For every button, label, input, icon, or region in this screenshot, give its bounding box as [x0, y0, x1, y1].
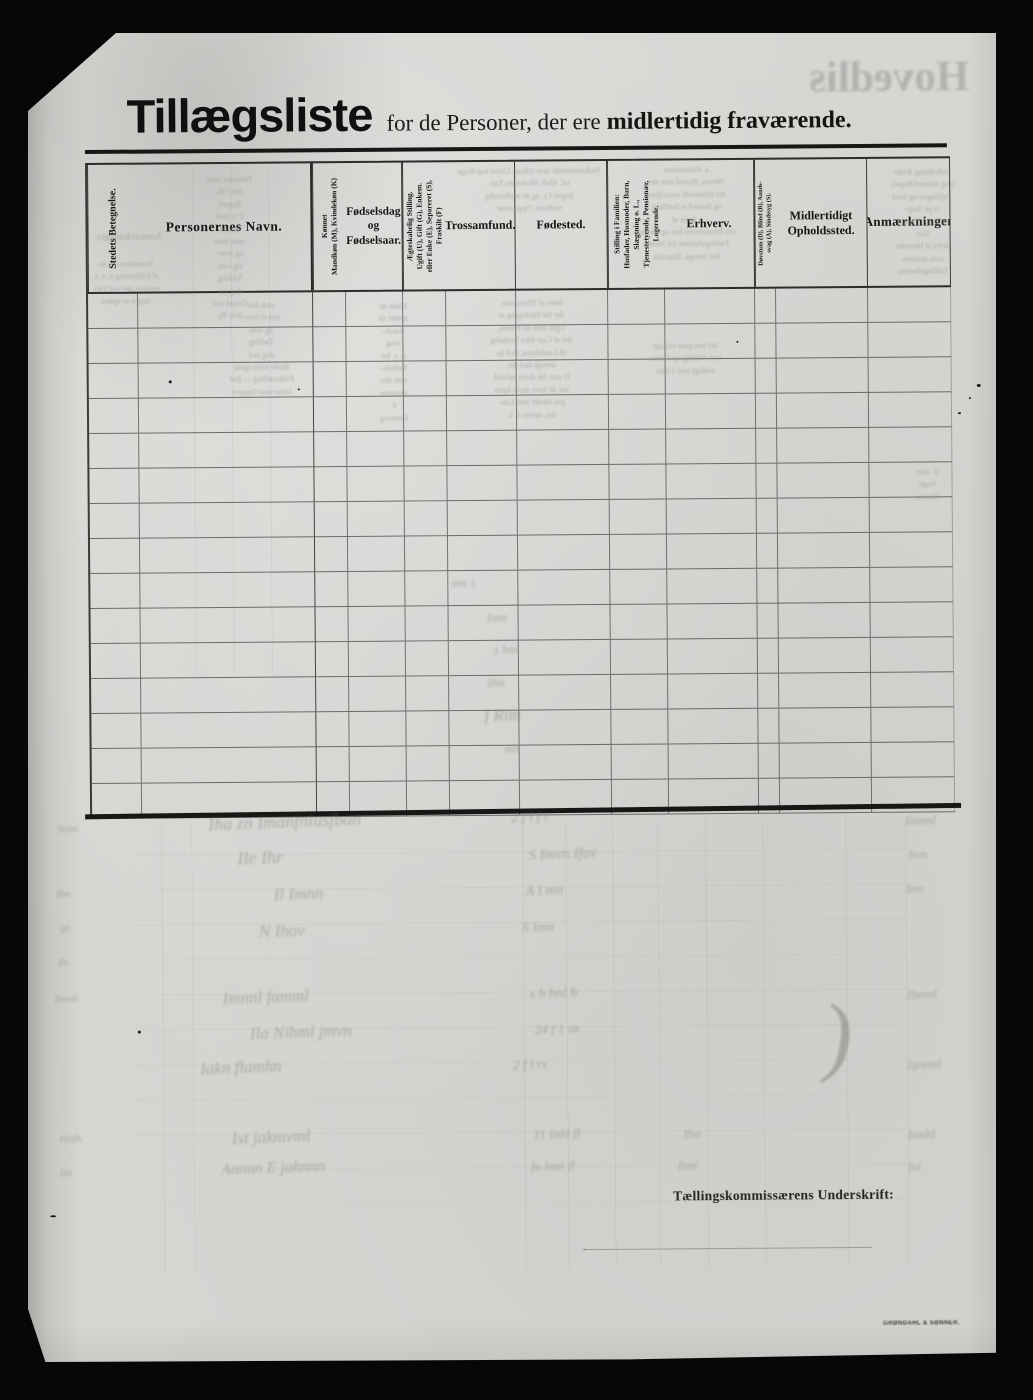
- table-cell-dovstum: [757, 499, 778, 534]
- bleedthrough-handwriting: gn: [60, 923, 70, 934]
- table-cell-fodested: [518, 570, 610, 606]
- table-cell-midlertidigt-opholdssted: [777, 393, 869, 429]
- table-cell-stedets-betegnelse: [89, 364, 139, 399]
- table-cell-fodselsdag: [349, 677, 406, 712]
- table-cell-stedets-betegnelse: [90, 539, 140, 574]
- table-cell-trossamfund: [448, 501, 518, 537]
- table-cell-kjonnet: [316, 677, 349, 712]
- col-header-aegteskabelig-stilling: Ægteskabelig Stilling. Ugift (U), Gift (…: [402, 162, 446, 289]
- table-cell-anmaerkninger: [869, 392, 952, 428]
- table-cell-fodselsdag: [349, 642, 406, 677]
- ink-speck: [736, 341, 738, 343]
- scanned-paper-sheet: Hovedliste Tillægslistefor de Personer, …: [28, 33, 996, 1362]
- table-cell-aegteskabelig-stilling: [406, 711, 449, 746]
- bleedthrough-print-block: Indledning, Kirke a og dermed Bopæl, Tæl…: [866, 166, 979, 278]
- table-cell-dovstum: [755, 289, 776, 324]
- table-cell-aegteskabelig-stilling: [407, 746, 450, 781]
- table-cell-personernes-navn: [141, 677, 316, 713]
- table-cell-stedets-betegnelse: [90, 574, 140, 609]
- table-cell-erhverv: [666, 429, 756, 465]
- ink-speck: [958, 412, 961, 414]
- table-cell-trossamfund: [447, 466, 517, 502]
- table-cell-anmaerkninger: [869, 357, 952, 393]
- scanned-census-form-page: { "document": { "title": "Tillægsliste",…: [0, 0, 1033, 1400]
- bleedthrough-handwriting: Inl: [908, 1159, 922, 1174]
- bleedthrough-print-block: d. Ann Sogn Skema: [882, 466, 972, 504]
- bleedthrough-handwriting: Iakn flamhn: [200, 1056, 282, 1079]
- col-header-kjonnet: Kønnet Mandkøn (M), Kvindekøn (K): [312, 163, 346, 290]
- table-cell-kjonnet: [316, 712, 349, 747]
- table-cell-fodested: [519, 675, 611, 711]
- bleedthrough-handwriting: Ist jakmvml: [231, 1126, 311, 1149]
- ink-speck: [298, 388, 300, 390]
- bleedthrough-grid-line: [135, 1094, 907, 1101]
- table-cell-dovstum: [757, 569, 778, 604]
- table-cell-anmaerkninger: [869, 427, 952, 463]
- table-cell-midlertidigt-opholdssted: [779, 638, 871, 674]
- bleedthrough-handwriting: 2 f l rx: [513, 1056, 548, 1073]
- table-cell-anmaerkninger: [871, 707, 954, 743]
- bleedthrough-handwriting: S Imvn Ifov: [528, 845, 597, 864]
- table-cell-stilling-i-familien: [609, 394, 666, 429]
- table-cell-fodselsdag: [348, 607, 405, 642]
- table-cell-fodested: [518, 605, 610, 641]
- table-cell-anmaerkninger: [871, 637, 954, 673]
- table-cell-fodselsdag: [350, 747, 407, 782]
- table-cell-fodselsdag: [348, 502, 405, 537]
- bleedthrough-print-block: Børn af Tilreisende, der for Skolegang e…: [447, 297, 616, 422]
- table-cell-stilling-i-familien: [610, 569, 667, 604]
- table-cell-stilling-i-familien: [610, 604, 667, 639]
- bleedthrough-print-block: Blade de opføre de Aands- svag d. v. for…: [347, 300, 440, 425]
- table-cell-anmaerkninger: [868, 322, 951, 358]
- table-cell-personernes-navn: [140, 502, 315, 538]
- table-cell-aegteskabelig-stilling: [406, 641, 449, 676]
- table-cell-erhverv: [668, 674, 758, 710]
- table-cell-personernes-navn: [140, 537, 315, 573]
- table-cell-kjonnet: [314, 397, 347, 432]
- table-cell-midlertidigt-opholdssted: [778, 603, 870, 639]
- table-cell-stedets-betegnelse: [90, 504, 140, 539]
- table-cell-personernes-navn: [139, 467, 314, 503]
- table-cell-dovstum: [756, 464, 777, 499]
- table-cell-trossamfund: [448, 606, 518, 642]
- signature-line: [584, 1247, 872, 1250]
- table-cell-stedets-betegnelse: [92, 749, 142, 784]
- bleedthrough-handwriting: Iln: [60, 1167, 73, 1179]
- table-cell-stilling-i-familien: [608, 289, 665, 324]
- table-cell-erhverv: [668, 639, 758, 675]
- table-cell-kjonnet: [315, 502, 348, 537]
- table-cell-anmaerkninger: [871, 672, 954, 708]
- col-header-fodselsdag: Fødselsdag og Fødselsaar.: [345, 163, 403, 290]
- bleedthrough-handwriting: mn s: [451, 575, 476, 592]
- bleedthrough-handwriting: mn: [504, 741, 519, 757]
- table-cell-erhverv: [667, 534, 757, 570]
- table-cell-erhverv: [669, 744, 759, 780]
- ink-speck: [169, 380, 172, 383]
- table-cell-dovstum: [758, 674, 779, 709]
- table-cell-fodested: [519, 640, 611, 676]
- bleedthrough-grid-line: [134, 884, 906, 891]
- table-cell-stedets-betegnelse: [89, 434, 139, 469]
- bleedthrough-handwriting: Innhl: [907, 1126, 935, 1143]
- bleedthrough-handwriting: Ihn: [56, 888, 71, 901]
- bleedthrough-handwriting: s hm: [494, 641, 519, 658]
- form-content: Hovedliste Tillægslistefor de Personer, …: [27, 26, 1005, 1363]
- table-cell-stilling-i-familien: [610, 534, 667, 569]
- table-cell-dovstum: [757, 534, 778, 569]
- table-cell-kjonnet: [315, 607, 348, 642]
- table-cell-aegteskabelig-stilling: [405, 606, 448, 641]
- table-cell-personernes-navn: [140, 572, 315, 608]
- bleedthrough-handwriting: Ihn: [683, 1126, 701, 1143]
- table-cell-stilling-i-familien: [611, 639, 668, 674]
- table-cell-personernes-navn: [142, 747, 317, 783]
- ink-speck: [977, 384, 981, 387]
- form-title-subtitle-bold: midlertidig fraværende.: [607, 107, 852, 135]
- bleedthrough-handwriting: Ile Ihr: [237, 847, 283, 870]
- bleedthrough-handwriting: Snn: [905, 881, 924, 897]
- bleedthrough-handwriting: 24 f 1 sn: [535, 1021, 580, 1039]
- table-cell-anmaerkninger: [870, 532, 953, 568]
- bleedthrough-print-block: a. Kolonnerne Skema, Bosted som der der …: [616, 164, 757, 264]
- bleedthrough-handwriting: Iha zn Imanfnlusfban: [208, 809, 362, 835]
- table-cell-dovstum: [759, 744, 780, 779]
- ink-speck: [50, 1215, 56, 1217]
- table-cell-anmaerkninger: [870, 567, 953, 603]
- table-cell-fodested: [518, 500, 610, 536]
- table-cell-stilling-i-familien: [609, 464, 666, 499]
- table-cell-stedets-betegnelse: [91, 714, 141, 749]
- bleedthrough-handwriting: Hnfh: [59, 1133, 81, 1146]
- table-cell-aegteskabelig-stilling: [405, 536, 448, 571]
- table-cell-midlertidigt-opholdssted: [777, 358, 869, 394]
- bleedthrough-print-block: Fornødent om de af Udflytning o. s. v. m…: [67, 258, 185, 308]
- table-cell-stedets-betegnelse: [88, 329, 138, 364]
- table-cell-kjonnet: [315, 537, 348, 572]
- table-cell-dovstum: [756, 429, 777, 464]
- bleedthrough-print-block: som den nys er bort- og som Tælling dog …: [197, 299, 326, 399]
- bleedthrough-handwriting: Il Imnn: [273, 883, 323, 905]
- bleedthrough-handwriting: 11 Inhl fl: [533, 1126, 580, 1144]
- bleedthrough-handwriting: 2 f l f r: [511, 810, 550, 827]
- bleedthrough-print-block: der betegnet vedlagt som Stilling og Ske…: [621, 340, 749, 378]
- table-cell-kjonnet: [316, 642, 349, 677]
- table-cell-kjonnet: [315, 572, 348, 607]
- table-cell-dovstum: [756, 394, 777, 429]
- table-cell-midlertidigt-opholdssted: [778, 498, 870, 534]
- title-rule: [85, 143, 947, 154]
- bleedthrough-layer: Personer, som den Tid, Bopæl, f. v. med …: [27, 26, 995, 34]
- table-cell-erhverv: [666, 394, 756, 430]
- bleedthrough-handwriting: Nnm: [57, 823, 78, 836]
- table-cell-dovstum: [757, 604, 778, 639]
- table-cell-midlertidigt-opholdssted: [777, 463, 869, 499]
- table-cell-stilling-i-familien: [611, 674, 668, 709]
- table-cell-midlertidigt-opholdssted: [778, 533, 870, 569]
- table-cell-erhverv: [665, 289, 755, 325]
- table-cell-midlertidigt-opholdssted: [779, 708, 871, 744]
- table-cell-midlertidigt-opholdssted: [776, 288, 868, 324]
- col-header-midlertidigt-opholdssted: Midlertidigt Opholdssted.: [775, 159, 868, 287]
- bleedthrough-handwriting: Ihnnl: [54, 993, 78, 1006]
- table-cell-stilling-i-familien: [609, 429, 666, 464]
- table-cell-erhverv: [667, 499, 757, 535]
- table-cell-midlertidigt-opholdssted: [776, 323, 868, 359]
- table-cell-anmaerkninger: [870, 602, 953, 638]
- table-cell-stedets-betegnelse: [91, 609, 141, 644]
- table-cell-dovstum: [758, 639, 779, 674]
- table-cell-fodested: [520, 745, 612, 781]
- table-cell-aegteskabelig-stilling: [404, 431, 447, 466]
- bleedthrough-handwriting: ): [821, 985, 854, 1087]
- bleedthrough-handwriting: Ihn: [487, 675, 505, 692]
- table-cell-trossamfund: [448, 536, 518, 572]
- bleedthrough-handwriting: Imnnl: [905, 812, 936, 829]
- table-cell-dovstum: [755, 324, 776, 359]
- table-cell-dovstum: [756, 359, 777, 394]
- table-cell-fodested: [517, 430, 609, 466]
- signature-label: Tællingskommissærens Underskrift:: [673, 1187, 894, 1205]
- table-cell-fodested: [519, 710, 611, 746]
- table-cell-fodselsdag: [348, 572, 405, 607]
- ink-speck: [138, 1031, 141, 1034]
- table-cell-aegteskabelig-stilling: [405, 571, 448, 606]
- table-cell-fodselsdag: [347, 467, 404, 502]
- table-cell-fodselsdag: [347, 432, 404, 467]
- bleedthrough-handwriting: Ibmnl: [906, 986, 937, 1003]
- table-cell-midlertidigt-opholdssted: [777, 428, 869, 464]
- bleedthrough-print-block: Vedkommende dem vilkaar Listen kan Regn …: [448, 165, 610, 216]
- table-cell-erhverv: [666, 464, 756, 500]
- form-title-main: Tillægsliste: [126, 88, 372, 143]
- form-title-subtitle: for de Personer, der ere: [386, 109, 600, 136]
- ink-speck: [969, 397, 971, 399]
- bleedthrough-handwriting: Ila Nihml jmvn: [250, 1021, 353, 1045]
- table-cell-kjonnet: [317, 747, 350, 782]
- bleedthrough-print-block: Anmærkninger.: [69, 228, 189, 246]
- table-cell-stilling-i-familien: [611, 709, 668, 744]
- bleedthrough-handwriting: Imnnl famml: [222, 986, 309, 1009]
- table-cell-kjonnet: [314, 467, 347, 502]
- bleedthrough-grid-line: [134, 919, 906, 926]
- table-cell-kjonnet: [314, 432, 347, 467]
- table-cell-erhverv: [668, 709, 758, 745]
- table-cell-personernes-navn: [139, 397, 314, 433]
- table-cell-anmaerkninger: [868, 287, 951, 323]
- col-header-dovstum: Døvstum (D), Blind (B), Aands- svag (A),…: [754, 160, 776, 287]
- table-cell-erhverv: [667, 569, 757, 605]
- printer-imprint: GRØNDAHL & SØNNER.: [883, 1320, 960, 1327]
- table-cell-stedets-betegnelse: [91, 679, 141, 714]
- table-cell-stilling-i-familien: [612, 744, 669, 779]
- form-title: Tillægslistefor de Personer, der eremidl…: [126, 82, 956, 144]
- table-cell-midlertidigt-opholdssted: [779, 673, 871, 709]
- table-cell-stedets-betegnelse: [89, 469, 139, 504]
- table-cell-stedets-betegnelse: [89, 399, 139, 434]
- table-cell-fodselsdag: [348, 537, 405, 572]
- bleedthrough-handwriting: Imn: [486, 609, 507, 626]
- table-cell-midlertidigt-opholdssted: [778, 568, 870, 604]
- table-cell-stedets-betegnelse: [91, 644, 141, 679]
- table-cell-dovstum: [758, 709, 779, 744]
- table-cell-stilling-i-familien: [610, 499, 667, 534]
- table-cell-personernes-navn: [139, 432, 314, 468]
- table-cell-personernes-navn: [141, 607, 316, 643]
- bleedthrough-grid-line: [134, 954, 906, 961]
- table-cell-erhverv: [667, 604, 757, 640]
- table-cell-trossamfund: [447, 431, 517, 467]
- bleedthrough-handwriting: Ignnnl: [907, 1056, 942, 1073]
- table-cell-midlertidigt-opholdssted: [780, 743, 872, 779]
- table-cell-fodested: [518, 535, 610, 571]
- table-cell-anmaerkninger: [872, 742, 955, 778]
- table-cell-aegteskabelig-stilling: [404, 466, 447, 501]
- bleedthrough-handwriting: Ps: [58, 958, 68, 969]
- table-cell-personernes-navn: [141, 712, 316, 748]
- bleedthrough-handwriting: s h bnl h: [529, 986, 577, 1004]
- table-cell-aegteskabelig-stilling: [406, 676, 449, 711]
- table-cell-aegteskabelig-stilling: [405, 501, 448, 536]
- table-cell-fodselsdag: [349, 712, 406, 747]
- bleedthrough-handwriting: f Rim: [484, 705, 521, 726]
- bleedthrough-handwriting: hvn: [908, 846, 927, 863]
- table-cell-personernes-navn: [141, 642, 316, 678]
- table-cell-fodested: [517, 465, 609, 501]
